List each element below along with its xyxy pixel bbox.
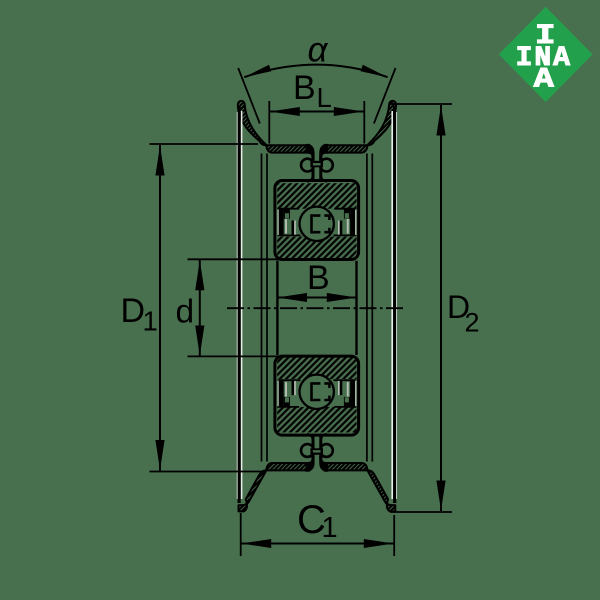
svg-text:2: 2 [465,308,480,338]
svg-text:d: d [176,294,195,331]
svg-text:D: D [121,292,146,330]
svg-text:1: 1 [143,306,158,337]
svg-text:1: 1 [322,512,338,544]
svg-text:α: α [308,31,329,70]
svg-text:L: L [317,82,332,113]
svg-text:B: B [293,69,316,107]
svg-text:B: B [307,259,330,297]
svg-text:A: A [534,65,554,96]
